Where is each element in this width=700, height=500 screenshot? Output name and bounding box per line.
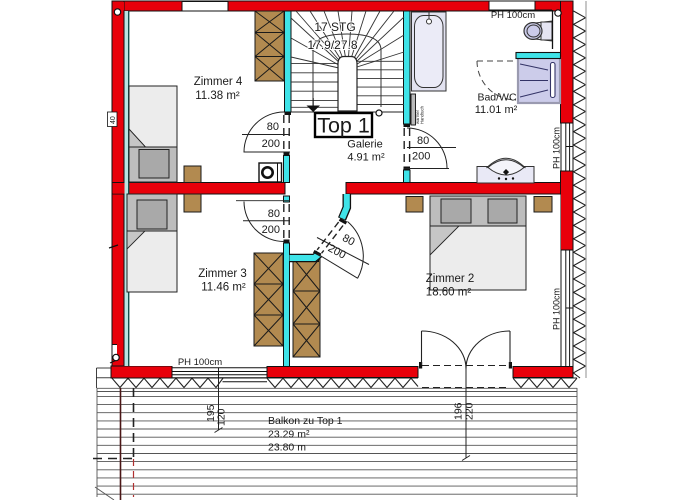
svg-text:Bad/WC: Bad/WC [477, 92, 517, 104]
svg-text:11.46 m²: 11.46 m² [201, 282, 246, 294]
svg-text:Zimmer 2: Zimmer 2 [426, 273, 475, 285]
svg-text:18.60 m²: 18.60 m² [426, 287, 472, 299]
svg-text:23.80 m: 23.80 m [268, 442, 306, 454]
svg-text:23.29 m²: 23.29 m² [268, 429, 310, 441]
svg-text:17 STG: 17 STG [314, 20, 355, 34]
svg-text:4.91 m²: 4.91 m² [347, 152, 385, 164]
svg-text:Balkon zu Top 1: Balkon zu Top 1 [268, 415, 343, 427]
svg-text:80: 80 [268, 208, 280, 220]
svg-text:80: 80 [267, 121, 279, 133]
svg-text:200: 200 [262, 224, 280, 236]
svg-text:PH 100cm: PH 100cm [491, 10, 535, 21]
svg-text:Zimmer 3: Zimmer 3 [198, 268, 247, 280]
svg-text:200: 200 [412, 151, 430, 163]
svg-text:Zimmer 4: Zimmer 4 [194, 76, 243, 88]
svg-text:PH 100cm: PH 100cm [552, 127, 562, 169]
svg-text:220: 220 [464, 402, 476, 420]
svg-text:Top 1: Top 1 [317, 114, 370, 138]
svg-text:Galerie: Galerie [347, 139, 382, 151]
svg-text:PH 100cm: PH 100cm [178, 357, 222, 368]
svg-text:17.9/27.8: 17.9/27.8 [307, 38, 357, 52]
svg-text:Handtuch: Handtuch [420, 105, 425, 124]
svg-text:200: 200 [262, 138, 280, 150]
svg-text:80: 80 [417, 135, 429, 147]
svg-text:120: 120 [216, 408, 228, 426]
svg-text:40: 40 [110, 116, 117, 124]
svg-text:PH 100cm: PH 100cm [552, 288, 562, 330]
svg-text:11.01 m²: 11.01 m² [475, 104, 518, 116]
svg-text:11.38 m²: 11.38 m² [195, 90, 240, 102]
